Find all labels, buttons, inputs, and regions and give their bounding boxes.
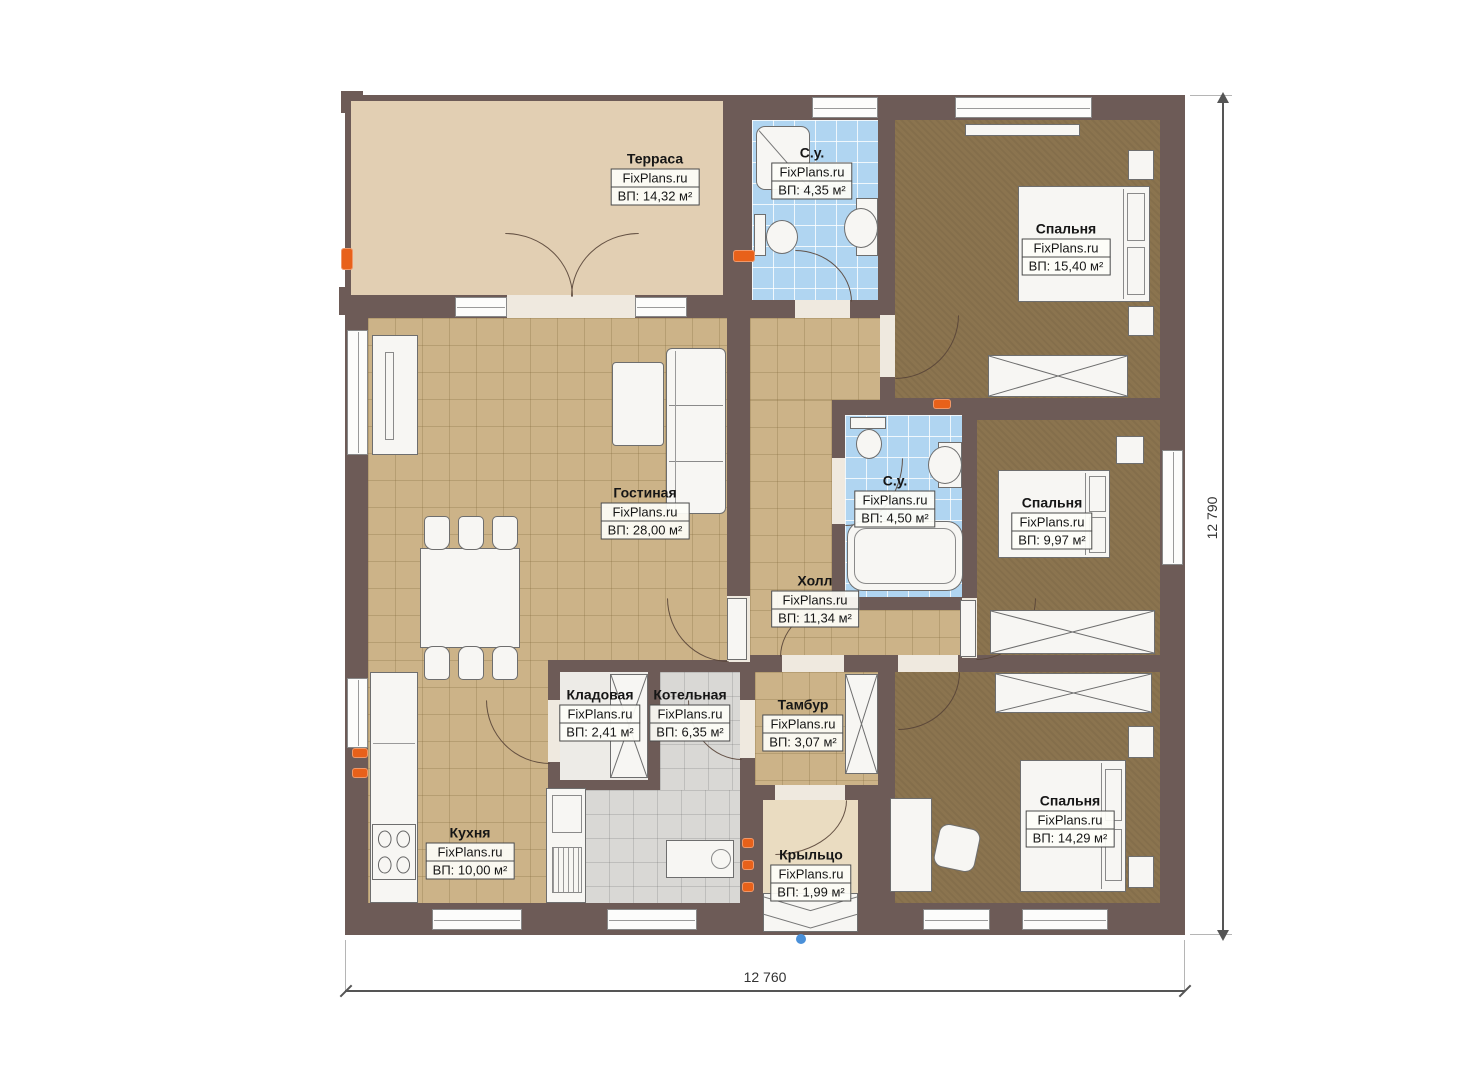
dimension-arrow-up [1217,92,1229,103]
outlet [742,838,754,848]
toilet-bowl [856,429,882,459]
room-name: Крыльцо [770,847,851,863]
window-living [347,330,368,455]
window-terrace-left [455,297,507,317]
room-area: ВП: 1,99 м² [770,883,851,902]
armchair [612,362,664,446]
window-terrace-right [635,297,687,317]
tv-unit [372,335,418,455]
nightstand [1128,856,1154,888]
door-gap-bathroom1 [795,300,850,318]
desk [890,798,932,892]
outlet [352,748,368,758]
nightstand [1128,306,1154,336]
door-gap-vestibule-hall [782,655,844,672]
room-label-storage: Кладовая FixPlans.ru ВП: 2,41 м² [559,687,640,742]
outlet [742,860,754,870]
brand-watermark: FixPlans.ru [771,591,859,610]
room-name: Кладовая [559,687,640,703]
door-gap-terrace [507,295,635,318]
outlet [742,882,754,892]
stove [372,824,416,880]
room-name: Котельная [649,687,730,703]
nightstand [1128,150,1154,180]
room-hall-floor-top [750,318,880,400]
room-area: ВП: 14,29 м² [1026,829,1115,848]
toilet [754,214,766,256]
dimension-height-label: 12 790 [1204,497,1220,540]
room-label-terrace: Терраса FixPlans.ru ВП: 14,32 м² [611,151,700,206]
entry-marker [796,934,806,944]
dining-chair [492,646,518,680]
brand-watermark: FixPlans.ru [426,843,515,862]
room-label-vestibule: Тамбур FixPlans.ru ВП: 3,07 м² [762,697,843,752]
brand-watermark: FixPlans.ru [611,169,700,188]
room-label-bedroom3: Спальня FixPlans.ru ВП: 14,29 м² [1026,793,1115,848]
room-name: С.у. [854,473,935,489]
room-area: ВП: 11,34 м² [771,609,859,628]
dining-table [420,548,520,648]
room-name: С.у. [771,145,852,161]
room-name: Спальня [1026,793,1115,809]
radiator [965,124,1080,136]
room-name: Кухня [426,825,515,841]
bathtub [847,521,963,591]
brand-watermark: FixPlans.ru [771,163,852,182]
door-leaf-bedroom2 [960,600,976,657]
room-area: ВП: 14,32 м² [611,187,700,206]
brand-watermark: FixPlans.ru [559,705,640,724]
room-area: ВП: 28,00 м² [601,521,690,540]
nightstand [1116,436,1144,464]
room-label-living: Гостиная FixPlans.ru ВП: 28,00 м² [601,485,690,540]
wardrobe [990,610,1155,654]
dining-chair [424,516,450,550]
dimension-line-width [345,990,1185,992]
room-name: Холл [771,573,859,589]
boiler-unit [666,840,734,878]
door-gap-bathroom2 [832,458,845,524]
window-boiler [607,909,697,930]
toilet-bowl [766,220,798,254]
brand-watermark: FixPlans.ru [770,865,851,884]
door-gap-bedroom3 [898,655,958,672]
brand-watermark: FixPlans.ru [1011,513,1092,532]
sink-basin [844,208,878,248]
room-area: ВП: 3,07 м² [762,733,843,752]
wardrobe [995,673,1152,713]
room-name: Терраса [611,151,700,167]
dining-chair [424,646,450,680]
dimension-extension [345,940,346,992]
room-label-porch: Крыльцо FixPlans.ru ВП: 1,99 м² [770,847,851,902]
room-label-hall: Холл FixPlans.ru ВП: 11,34 м² [771,573,859,628]
nightstand [1128,726,1154,758]
dining-chair [458,646,484,680]
dining-chair [492,516,518,550]
wardrobe [988,355,1128,397]
outlet [933,399,951,409]
window-bedroom1 [955,97,1092,118]
door-gap-vestibule-porch [775,785,845,800]
brand-watermark: FixPlans.ru [854,491,935,510]
window-bathroom1 [812,97,878,118]
window-bedroom2 [1162,450,1183,565]
room-area: ВП: 2,41 м² [559,723,640,742]
kitchen-sink-column [546,788,586,903]
door-gap-bedroom1 [880,315,895,377]
room-label-kitchen: Кухня FixPlans.ru ВП: 10,00 м² [426,825,515,880]
dimension-line-height [1222,98,1224,938]
door-leaf-living-hall [727,598,747,660]
room-name: Спальня [1011,495,1092,511]
outlet [341,248,353,270]
window-bedroom3-b [1022,909,1108,930]
room-area: ВП: 4,35 м² [771,181,852,200]
toilet [850,417,886,429]
room-label-bedroom1: Спальня FixPlans.ru ВП: 15,40 м² [1022,221,1111,276]
brand-watermark: FixPlans.ru [1022,239,1111,258]
dimension-extension [1184,940,1185,992]
outlet [352,768,368,778]
room-name: Гостиная [601,485,690,501]
brand-watermark: FixPlans.ru [601,503,690,522]
room-name: Спальня [1022,221,1111,237]
window-kitchen-left [347,678,368,748]
brand-watermark: FixPlans.ru [762,715,843,734]
room-label-bathroom1: С.у. FixPlans.ru ВП: 4,35 м² [771,145,852,200]
window-kitchen-bottom [432,909,522,930]
room-label-boiler: Котельная FixPlans.ru ВП: 6,35 м² [649,687,730,742]
room-area: ВП: 15,40 м² [1022,257,1111,276]
dining-chair [458,516,484,550]
window-bedroom3-a [923,909,990,930]
dimension-width-label: 12 760 [744,969,787,985]
room-area: ВП: 4,50 м² [854,509,935,528]
outlet [733,250,755,262]
door-gap-boiler [740,700,755,758]
brand-watermark: FixPlans.ru [1026,811,1115,830]
wardrobe [845,674,878,774]
floor-plan-canvas: Терраса FixPlans.ru ВП: 14,32 м² С.у. Fi… [0,0,1474,1080]
room-area: ВП: 10,00 м² [426,861,515,880]
brand-watermark: FixPlans.ru [649,705,730,724]
room-name: Тамбур [762,697,843,713]
dimension-arrow-down [1217,930,1229,941]
room-label-bathroom2: С.у. FixPlans.ru ВП: 4,50 м² [854,473,935,528]
room-label-bedroom2: Спальня FixPlans.ru ВП: 9,97 м² [1011,495,1092,550]
room-area: ВП: 9,97 м² [1011,531,1092,550]
room-area: ВП: 6,35 м² [649,723,730,742]
